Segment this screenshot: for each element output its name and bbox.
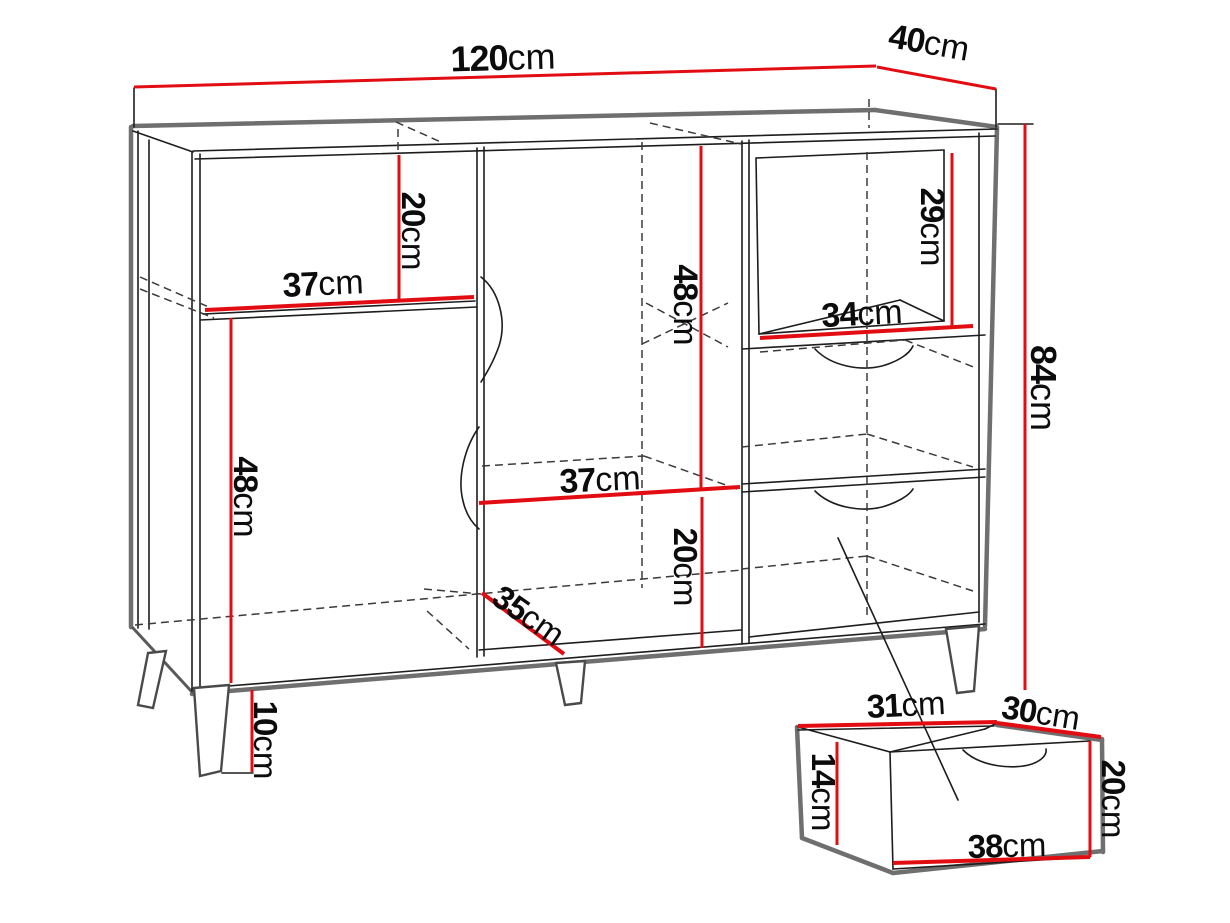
- dim-overall-width: 120cm: [450, 35, 556, 79]
- dim-overall-depth: 40cm: [886, 17, 973, 69]
- dim-left-niche-height: 20cm: [396, 192, 433, 271]
- dim-drawer-front-width: 38cm: [967, 825, 1047, 864]
- drawer-detail-handle-notch: [963, 749, 1046, 767]
- dim-drawer-side-height: 14cm: [806, 753, 843, 832]
- dim-middle-lower-height: 20cm: [668, 528, 705, 607]
- dim-left-door-height: 48cm: [226, 456, 264, 537]
- drawer-leader-line: [838, 538, 958, 800]
- dim-drawer-top-width: 31cm: [866, 683, 947, 724]
- dim-right-niche-width: 34cm: [820, 293, 903, 335]
- leg-front-middle: [556, 661, 585, 705]
- drawer2-handle-notch: [815, 489, 913, 509]
- drawer1-handle-notch: [815, 346, 913, 368]
- leg-front-right: [946, 626, 979, 693]
- dim-right-niche-height: 29cm: [915, 188, 952, 267]
- dim-line-overall-depth: [877, 67, 996, 89]
- dim-middle-open-height: 48cm: [666, 264, 704, 345]
- dim-leg-height: 10cm: [248, 701, 285, 780]
- dim-overall-height: 84cm: [1024, 345, 1065, 431]
- furniture-dimension-diagram: 120cm 40cm 84cm 20cm 37cm 48cm 48cm 37cm…: [0, 0, 1230, 923]
- dim-drawer-front-height: 20cm: [1096, 760, 1133, 839]
- hidden-edges: [135, 99, 976, 649]
- dim-left-shelf-width: 37cm: [282, 263, 365, 305]
- dim-middle-shelf-width: 37cm: [559, 459, 642, 501]
- leg-back-left: [138, 651, 166, 708]
- leg-front-left: [194, 685, 229, 776]
